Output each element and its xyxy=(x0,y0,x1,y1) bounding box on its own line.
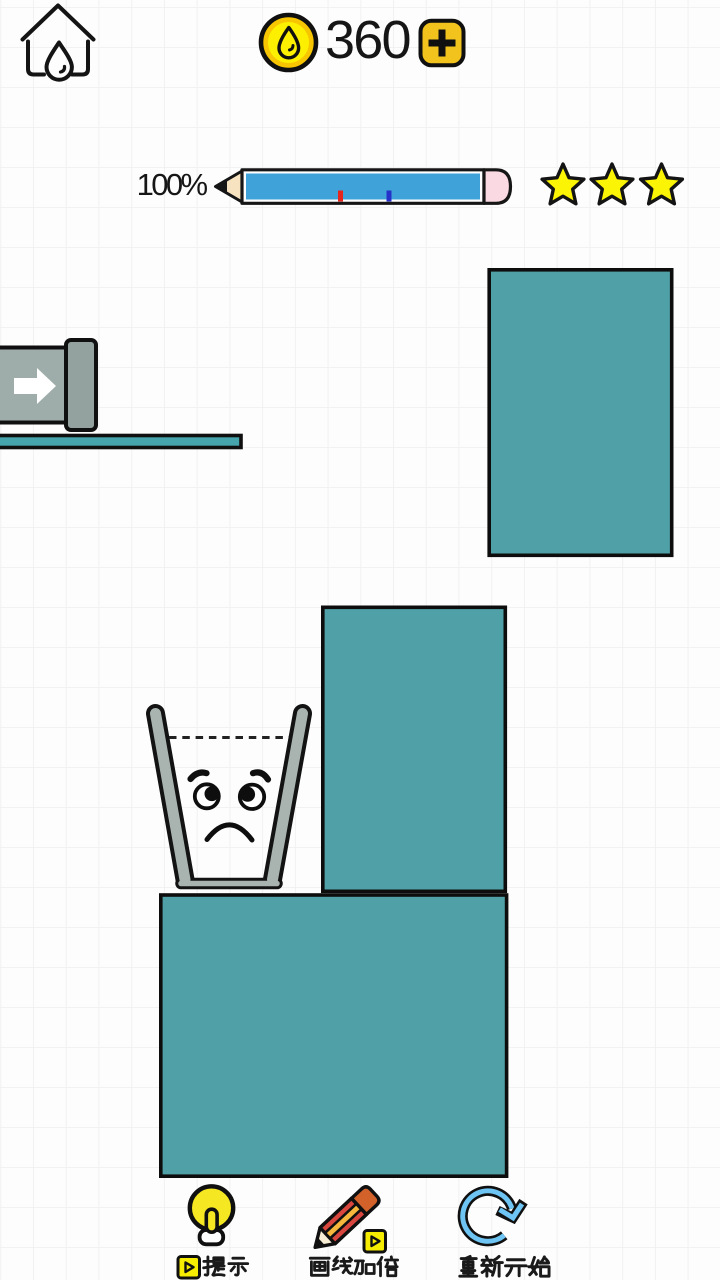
svg-text:100%: 100% xyxy=(137,167,208,202)
svg-text:360: 360 xyxy=(325,10,410,70)
